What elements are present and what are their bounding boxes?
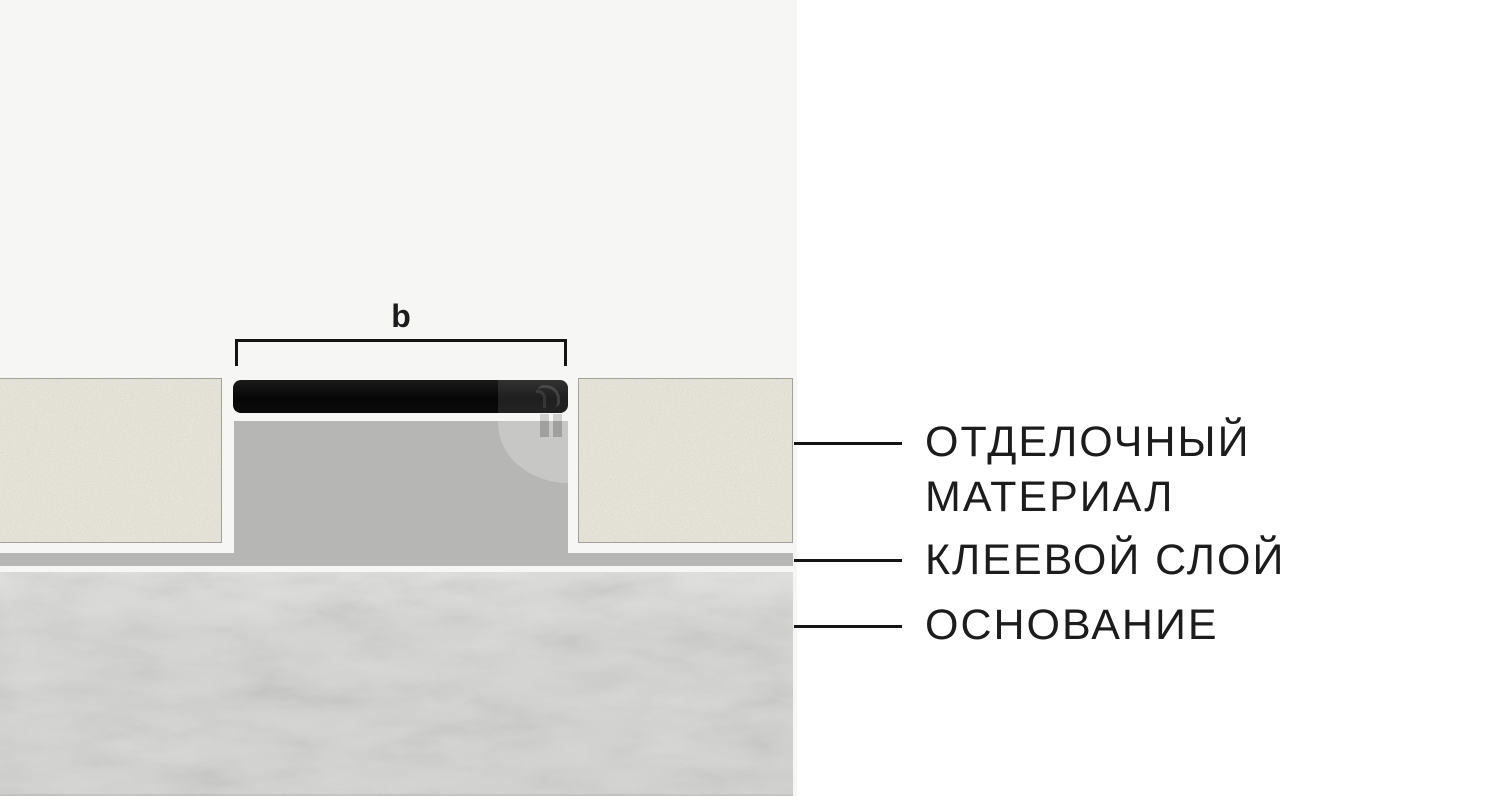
stucco-texture [579,379,792,542]
leader-line-finishing-material [794,442,902,445]
label-line: ОТДЕЛОЧНЫЙ [925,415,1251,470]
watermark-overlay [498,380,568,413]
marble-texture [0,572,793,796]
watermark-logo-bars [540,414,562,437]
leader-line-base [794,625,902,628]
watermark-bar [553,414,562,437]
base-substrate-block [0,572,793,796]
page: b [0,0,1500,796]
label-line: ОСНОВАНИЕ [925,598,1219,653]
label-base: ОСНОВАНИЕ [925,598,1219,653]
stucco-texture [0,379,221,542]
grain-texture [0,572,793,796]
leader-line-adhesive-layer [794,559,902,562]
label-finishing-material: ОТДЕЛОЧНЫЙ МАТЕРИАЛ [925,415,1251,525]
label-line: МАТЕРИАЛ [925,470,1251,525]
adhesive-layer-strip [0,553,793,566]
watermark-bar [540,414,549,437]
finishing-material-right-block [578,378,793,543]
dimension-bracket-left-tick [235,339,238,366]
profile-bar [233,380,568,413]
dimension-bracket-right-tick [564,339,567,366]
cross-section-diagram: b [0,0,797,796]
dimension-bracket-line [235,339,567,342]
adhesive-riser-block [234,421,568,566]
label-adhesive-layer: КЛЕЕВОЙ СЛОЙ [925,533,1285,588]
finishing-material-left-block [0,378,222,543]
dimension-label-b: b [235,298,567,335]
label-line: КЛЕЕВОЙ СЛОЙ [925,533,1285,588]
watermark-logo-glyph [536,390,546,408]
